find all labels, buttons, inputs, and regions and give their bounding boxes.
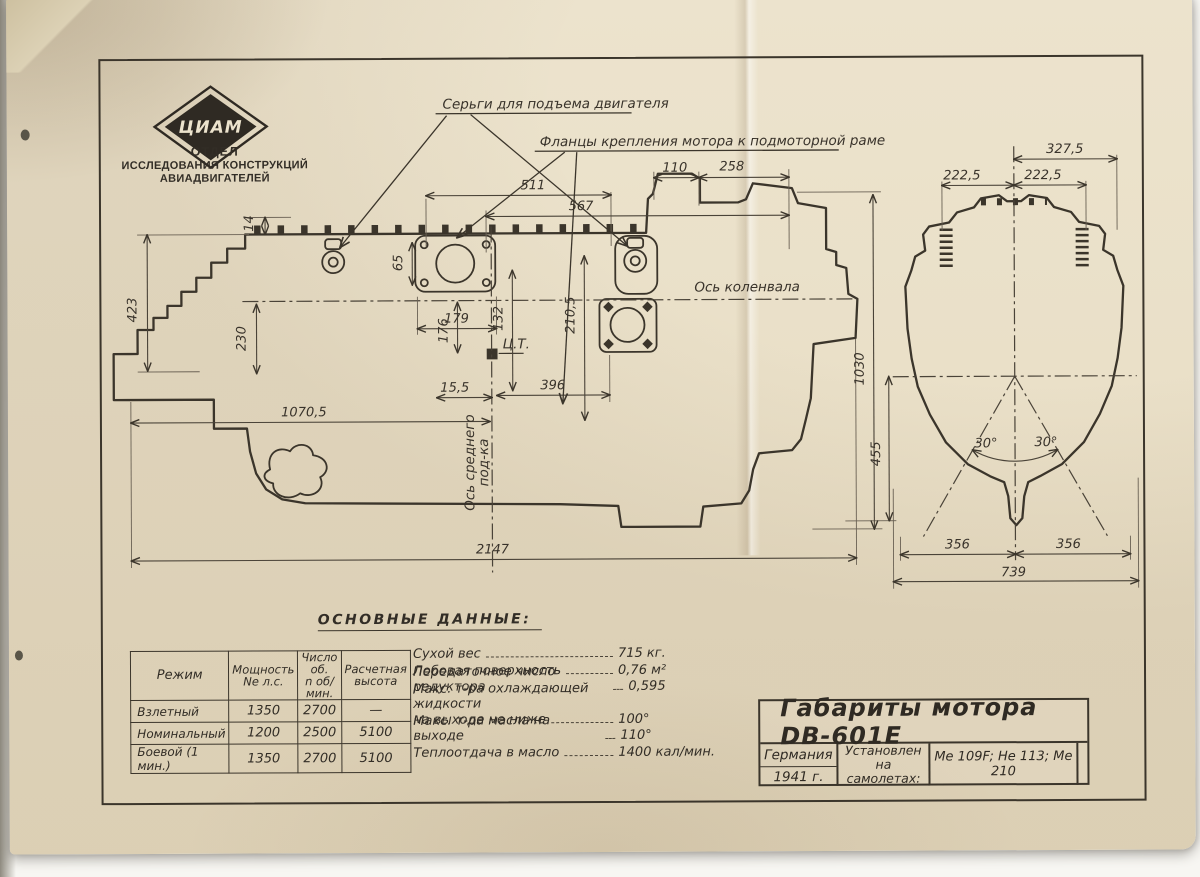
dim-739: 739 (1001, 565, 1026, 580)
spec-value: 0,595 (628, 679, 713, 694)
spec-label: Теплоотдача в масло (413, 745, 559, 761)
leader-dashes (564, 755, 613, 756)
dim-15-5: 15,5 (440, 381, 469, 396)
dim-455: 455 (869, 441, 884, 466)
table-cell: 1350 (229, 700, 298, 722)
spec-value: 1400 кал/мин. (618, 744, 713, 759)
dim-258: 258 (719, 159, 744, 174)
dim-30-right: 30° (1034, 435, 1057, 450)
dimension-lines (130, 159, 1139, 585)
dim-230: 230 (235, 326, 250, 351)
spec-row: Сухой вес 715 кг. (413, 645, 713, 663)
dim-222-5-left: 222,5 (943, 168, 980, 183)
spec-value: 110° (620, 728, 713, 743)
col-header-altitude: Расчетная высота (341, 650, 411, 699)
table-cell: Взлетный (131, 700, 229, 722)
axis-label-mid-bearing-2: под-ка (476, 439, 492, 487)
mid-bearing-axis-line (491, 226, 493, 572)
lifting-lug-rear (627, 238, 643, 248)
dim-327-5: 327,5 (1046, 142, 1083, 157)
dim-396: 396 (540, 378, 565, 393)
spec-value: 715 кг. (618, 646, 713, 661)
table-row: Взлетный 1350 2700 — (131, 699, 411, 722)
dim-65: 65 (391, 255, 406, 272)
aircraft-list-cell: Me 109F; He 113; Me 210 (930, 743, 1078, 786)
table-cell: 2700 (298, 700, 341, 722)
dim-30-left: 30° (974, 436, 997, 451)
lifting-lug-front (325, 239, 341, 249)
table-cell: 1350 (229, 744, 298, 773)
country-label: Германия (760, 745, 836, 767)
spec-row: Макс. т-ра охлаждающей жидкости (413, 694, 713, 712)
spec-value: 100° (618, 711, 713, 726)
spec-label: Сухой вес (413, 647, 481, 662)
spec-value: 0,76 м² (618, 662, 713, 677)
country-cell: Германия 1941 г. (760, 744, 838, 786)
crankshaft-axis-line (242, 299, 856, 302)
table-cell: 2700 (298, 744, 341, 773)
performance-table: Режим Мощность Nе л.с. Число об. n об/ми… (130, 650, 411, 774)
table-cell: Номинальный (131, 722, 229, 744)
year-label: 1941 г. (773, 767, 823, 785)
specs-list: Сухой вес 715 кг. Лобовая поверхность 0,… (413, 645, 713, 761)
dim-423: 423 (125, 298, 140, 323)
paper-wrapper: ЦИАМ ОТДЕЛ ИССЛЕДОВАНИЯ КОНСТРУКЦИЙ АВИА… (0, 0, 1200, 877)
centerlines (242, 146, 1138, 574)
dim-1070-5: 1070,5 (281, 405, 327, 420)
title-block: Габариты мотора DB-601E Германия 1941 г.… (758, 698, 1089, 786)
table-cell: 1200 (229, 722, 298, 744)
table-cell: Боевой (1 мин.) (131, 744, 229, 773)
dim-567: 567 (569, 199, 595, 214)
dim-14: 14 (242, 215, 257, 232)
dim-222-5-right: 222,5 (1024, 168, 1061, 183)
dim-210-5: 210,5 (563, 296, 578, 333)
table-cell: 2500 (298, 722, 341, 744)
table-row: Боевой (1 мин.) 1350 2700 5100 (131, 743, 411, 773)
callout-mount-flanges: Фланцы крепления мотора к подмоторной ра… (540, 133, 886, 151)
axis-label-crankshaft: Ось коленвала (694, 279, 800, 295)
dim-1030: 1030 (853, 352, 868, 385)
side-view-details (322, 235, 658, 359)
dim-511: 511 (520, 178, 545, 193)
cg-label: Ц.Т. (503, 336, 530, 352)
spec-label: Макс. т-ра масла на выходе (413, 713, 600, 744)
col-header-mode: Режим (130, 651, 228, 700)
dim-176: 176 (436, 318, 451, 343)
dim-132: 132 (491, 306, 506, 331)
dim-356-right: 356 (1056, 537, 1081, 552)
col-header-rpm: Число об. n об/мин. (298, 651, 341, 700)
dim-110: 110 (662, 161, 687, 176)
drawing-title: Габариты мотора DB-601E (760, 700, 1087, 744)
callout-lifting-lugs: Серьги для подъема двигателя (443, 96, 669, 113)
drawing-labels: Серьги для подъема двигателя Фланцы креп… (125, 94, 1086, 584)
empty-cell (1078, 743, 1087, 785)
scanned-drawing-page: ЦИАМ ОТДЕЛ ИССЛЕДОВАНИЯ КОНСТРУКЦИЙ АВИА… (0, 0, 1200, 877)
spec-row: Макс. т-ра масла на выходе 110° (413, 726, 713, 744)
spec-row: Теплоотдача в масло 1400 кал/мин. (413, 743, 713, 761)
leader-dashes (486, 656, 613, 658)
leader-dashes (605, 738, 615, 739)
dim-356-left: 356 (945, 537, 970, 552)
dim-2147: 2147 (476, 542, 510, 557)
installed-on-cell: Установлен на самолетах: (838, 744, 930, 786)
main-data-heading: ОСНОВНЫЕ ДАННЫЕ: (318, 611, 542, 631)
table-cell: 5100 (341, 721, 410, 743)
table-cell: 5100 (341, 743, 410, 772)
col-header-power: Мощность Nе л.с. (229, 651, 298, 700)
spec-label: Макс. т-ра охлаждающей жидкости (413, 680, 615, 711)
table-row: Номинальный 1200 2500 5100 (131, 721, 411, 744)
table-cell: — (341, 699, 410, 721)
